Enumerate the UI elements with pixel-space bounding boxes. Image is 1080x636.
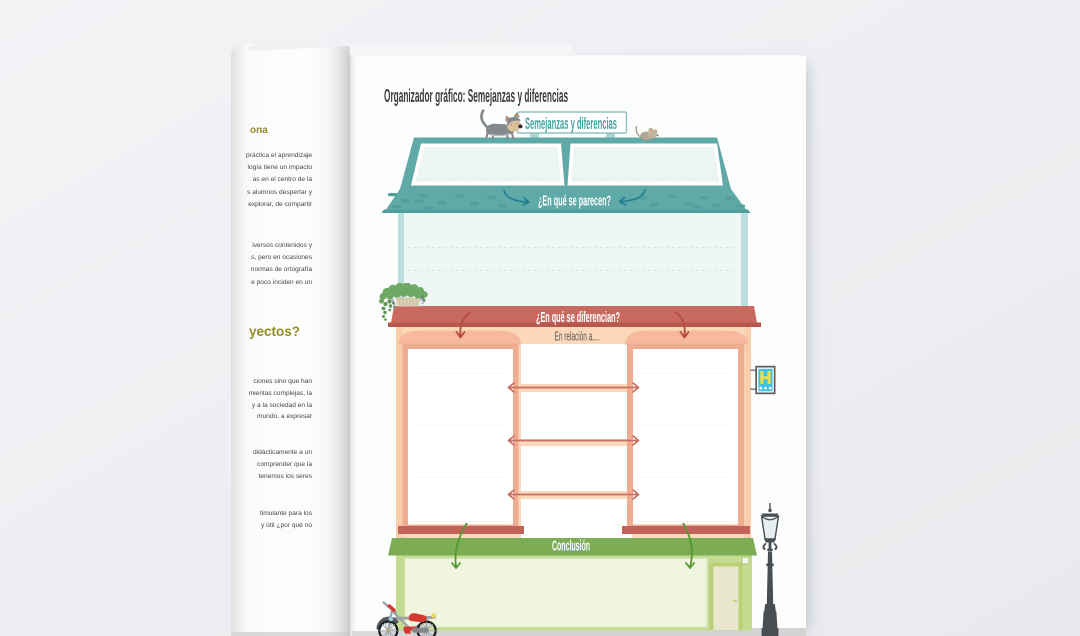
svg-text:Semejanzas y diferencias: Semejanzas y diferencias	[525, 114, 617, 133]
svg-text:Conclusión: Conclusión	[552, 538, 590, 555]
svg-text:¿En qué se diferencian?: ¿En qué se diferencian?	[536, 309, 620, 326]
svg-text:En relación a....: En relación a....	[555, 329, 600, 344]
svg-text:¿En qué se parecen?: ¿En qué se parecen?	[538, 193, 611, 210]
